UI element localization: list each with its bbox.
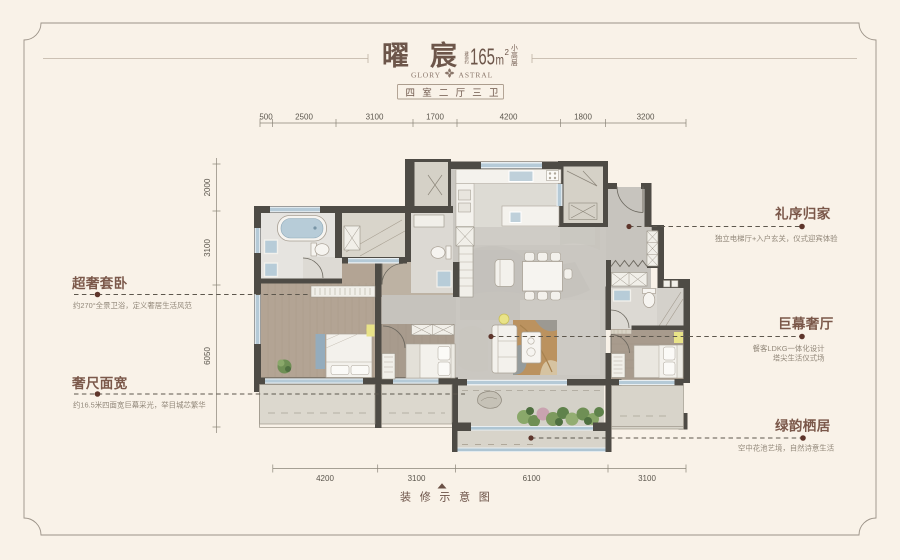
svg-text:约16.5米四面宽巨幕采光，举目城芯繁华: 约16.5米四面宽巨幕采光，举目城芯繁华 — [73, 401, 206, 410]
svg-text:1700: 1700 — [426, 113, 444, 122]
svg-text:装修示意图: 装修示意图 — [400, 490, 499, 504]
svg-text:巨幕奢厅: 巨幕奢厅 — [778, 316, 834, 332]
svg-text:6100: 6100 — [523, 474, 541, 483]
svg-text:6050: 6050 — [203, 347, 212, 365]
svg-text:3100: 3100 — [638, 474, 656, 483]
svg-text:165: 165 — [470, 44, 495, 70]
svg-text:2000: 2000 — [203, 178, 212, 196]
svg-text:4200: 4200 — [316, 474, 334, 483]
svg-text:绿韵栖居: 绿韵栖居 — [775, 418, 831, 434]
svg-text:2500: 2500 — [295, 113, 313, 122]
svg-text:约270°全景卫浴，定义奢居生活风范: 约270°全景卫浴，定义奢居生活风范 — [73, 301, 192, 310]
svg-text:独立电梯厅+入户玄关，仪式迎宾体验: 独立电梯厅+入户玄关，仪式迎宾体验 — [715, 234, 838, 243]
svg-text:宸: 宸 — [430, 41, 458, 71]
svg-text:曜: 曜 — [382, 41, 409, 71]
svg-text:3100: 3100 — [203, 239, 212, 257]
svg-text:3100: 3100 — [366, 113, 384, 122]
svg-text:2: 2 — [505, 48, 510, 57]
svg-text:3200: 3200 — [637, 113, 655, 122]
svg-text:四室二厅三卫: 四室二厅三卫 — [406, 87, 506, 99]
svg-text:4200: 4200 — [500, 113, 518, 122]
svg-text:塔尖生活仪式场: 塔尖生活仪式场 — [773, 354, 825, 363]
svg-text:约: 约 — [465, 58, 469, 65]
svg-text:ASTRAL: ASTRAL — [459, 71, 494, 80]
svg-text:高: 高 — [511, 51, 518, 60]
svg-text:GLORY: GLORY — [411, 71, 441, 80]
svg-text:小: 小 — [511, 43, 518, 52]
svg-text:超奢套卧: 超奢套卧 — [71, 275, 128, 291]
svg-text:500: 500 — [259, 113, 273, 122]
svg-text:空中花池艺境，自然诗意生活: 空中花池艺境，自然诗意生活 — [738, 444, 835, 453]
svg-text:礼序归家: 礼序归家 — [775, 206, 831, 222]
svg-text:奢尺面宽: 奢尺面宽 — [71, 375, 128, 391]
svg-text:餐客LDKG一体化设计: 餐客LDKG一体化设计 — [753, 344, 825, 353]
svg-text:层: 层 — [511, 59, 518, 67]
svg-text:3100: 3100 — [408, 474, 426, 483]
svg-text:1800: 1800 — [574, 113, 592, 122]
svg-text:m: m — [496, 52, 505, 68]
